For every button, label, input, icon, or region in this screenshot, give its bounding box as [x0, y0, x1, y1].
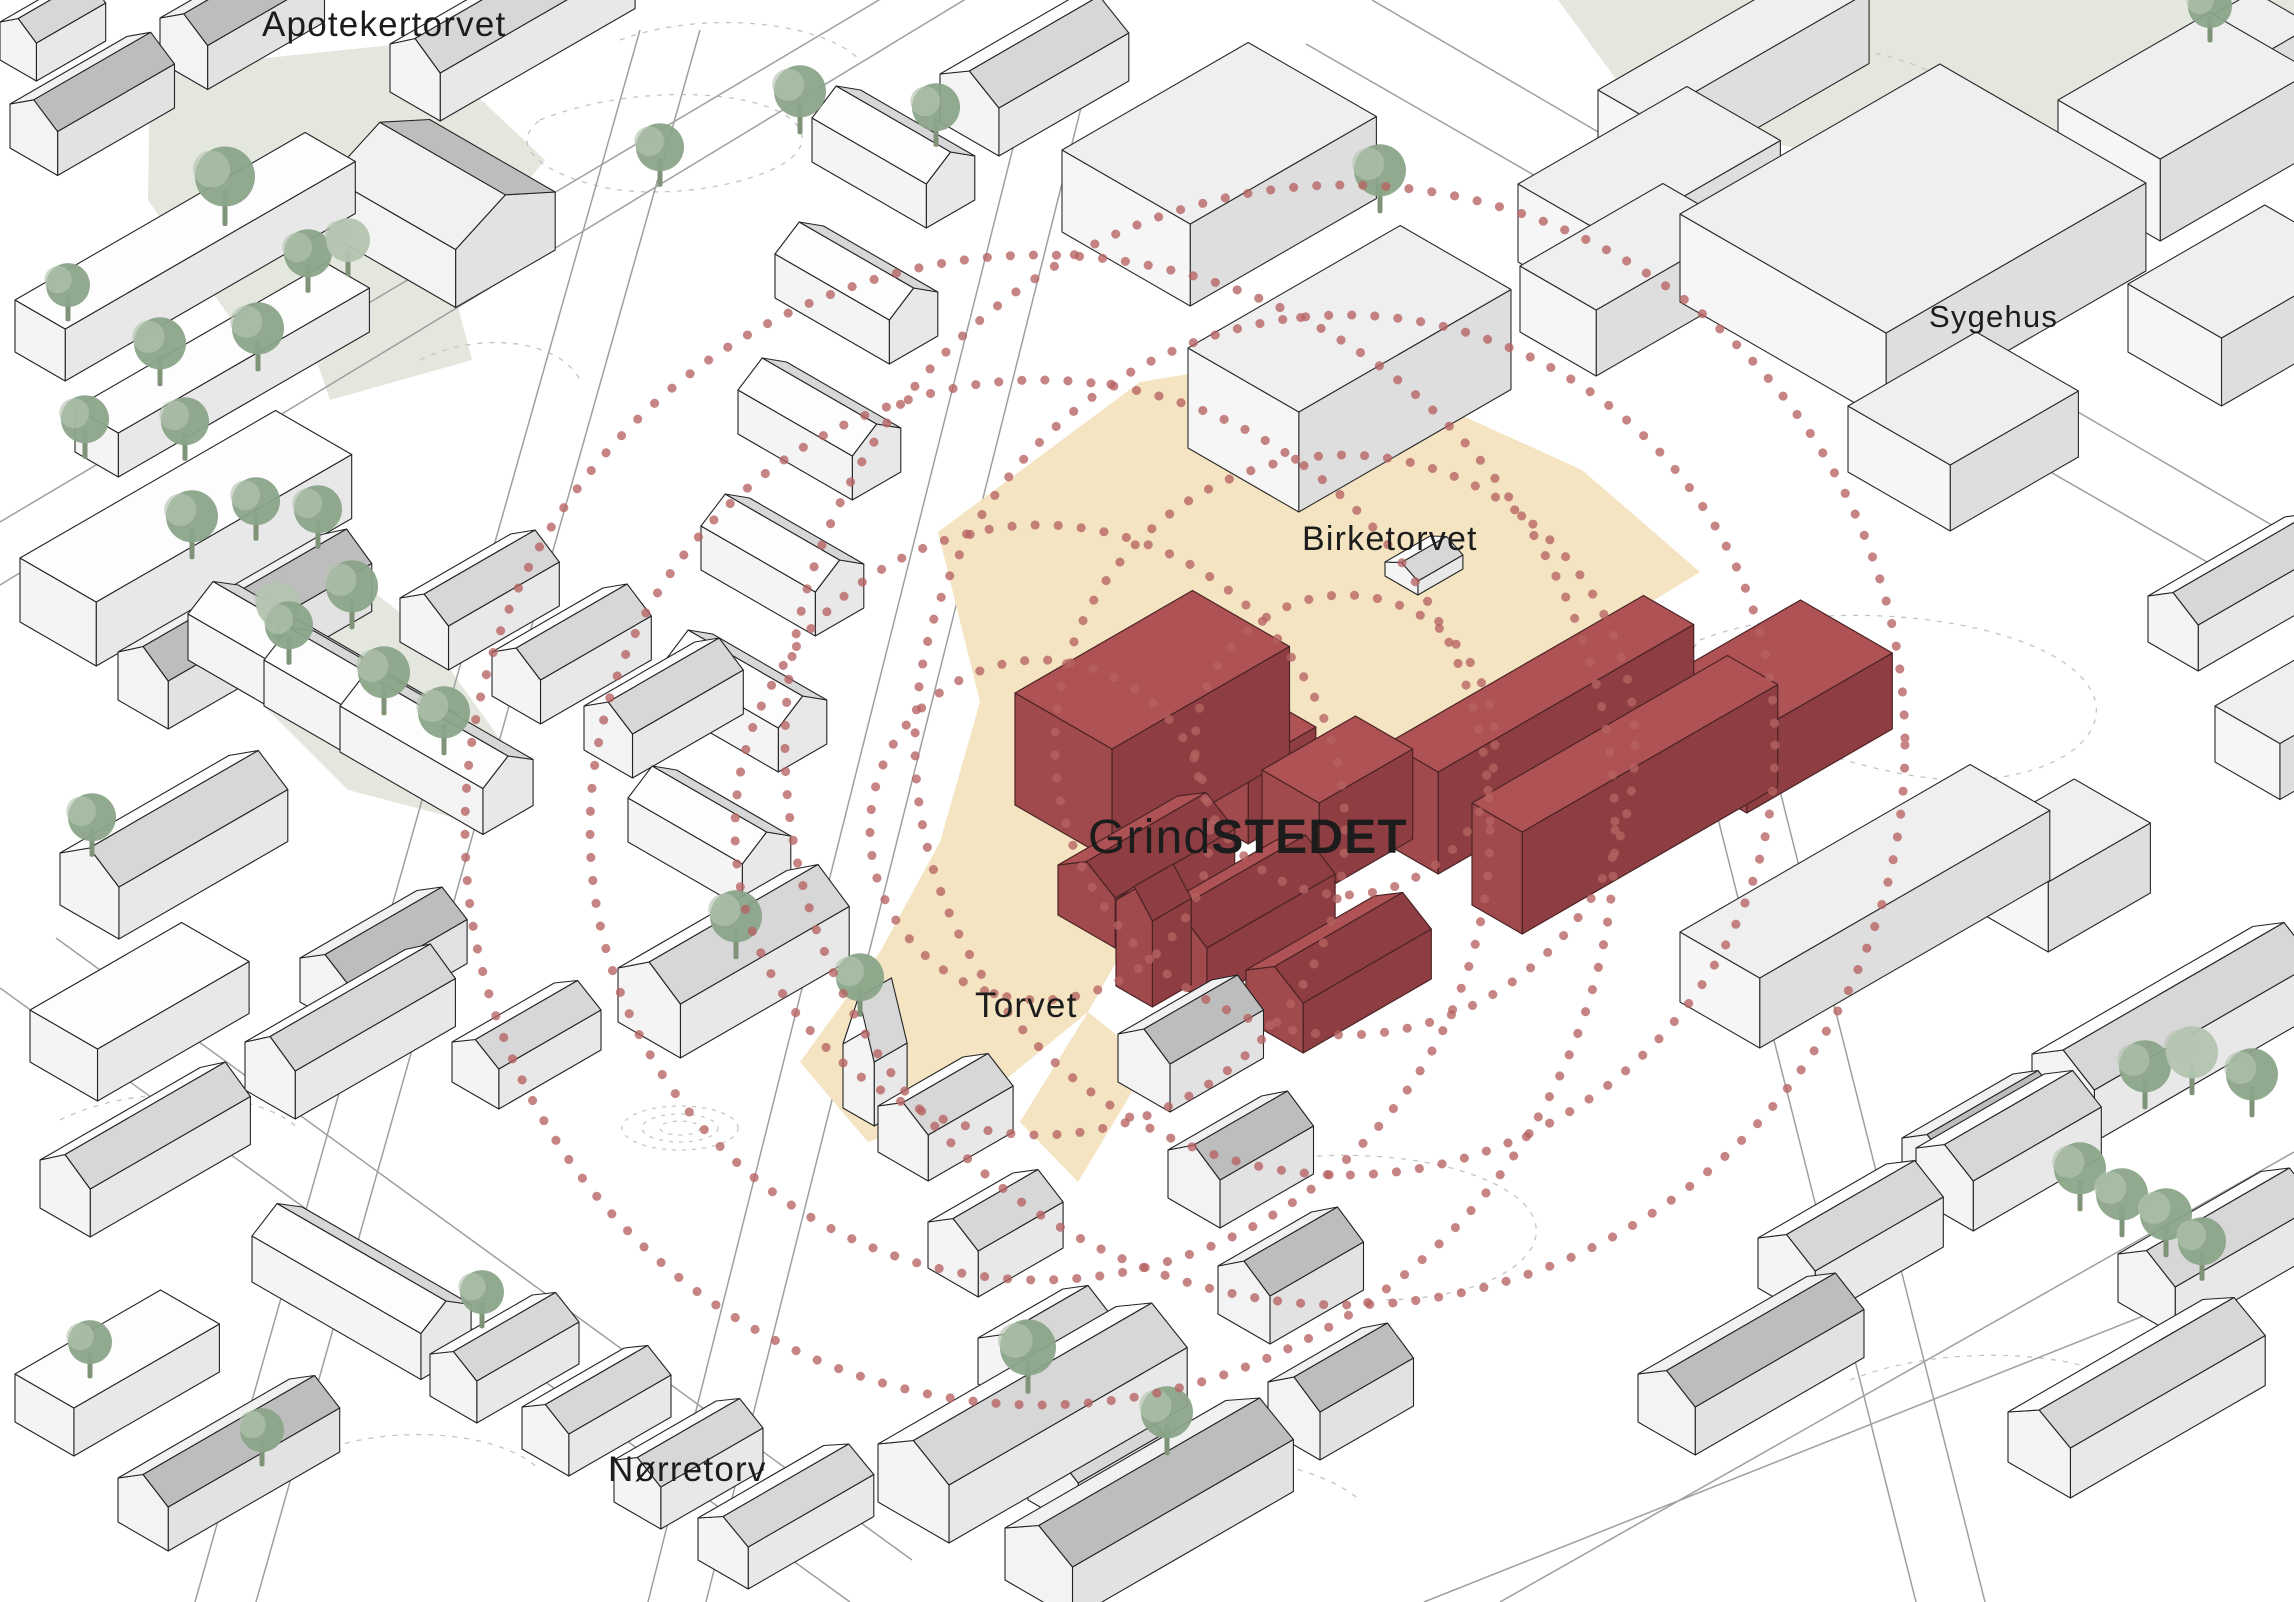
- label-sygehus: Sygehus: [1929, 299, 2058, 334]
- contour-line: [620, 23, 860, 60]
- label-grindstedet-bold: STEDET: [1211, 811, 1408, 864]
- contour-spiral: [660, 1121, 700, 1135]
- label-grindstedet: GrindSTEDET: [1088, 811, 1408, 864]
- building: [2215, 639, 2294, 800]
- building: [2008, 1298, 2265, 1499]
- tree: [159, 397, 209, 461]
- tree: [2224, 1048, 2278, 1117]
- building: [738, 358, 901, 500]
- tree: [634, 123, 684, 187]
- building: [928, 1170, 1063, 1298]
- label-apotekertorvet: Apotekertorvet: [262, 5, 506, 44]
- building: [1218, 1207, 1364, 1344]
- building: [1168, 1091, 1314, 1228]
- building: [452, 981, 601, 1110]
- label-norretorv: Nørretorv: [608, 1450, 767, 1489]
- building: [2148, 514, 2294, 672]
- building: [701, 494, 864, 636]
- site-map: Apotekertorvet Sygehus Birketorvet Grind…: [0, 0, 2294, 1602]
- building: [1638, 1273, 1864, 1455]
- label-torvet: Torvet: [975, 986, 1078, 1025]
- label-birketorvet: Birketorvet: [1302, 520, 1478, 558]
- building: [775, 222, 938, 364]
- label-grindstedet-regular: Grind: [1088, 811, 1211, 864]
- building: [15, 1290, 219, 1456]
- masterplan-illustration: Apotekertorvet Sygehus Birketorvet Grind…: [0, 0, 2294, 1602]
- building: [40, 1062, 250, 1237]
